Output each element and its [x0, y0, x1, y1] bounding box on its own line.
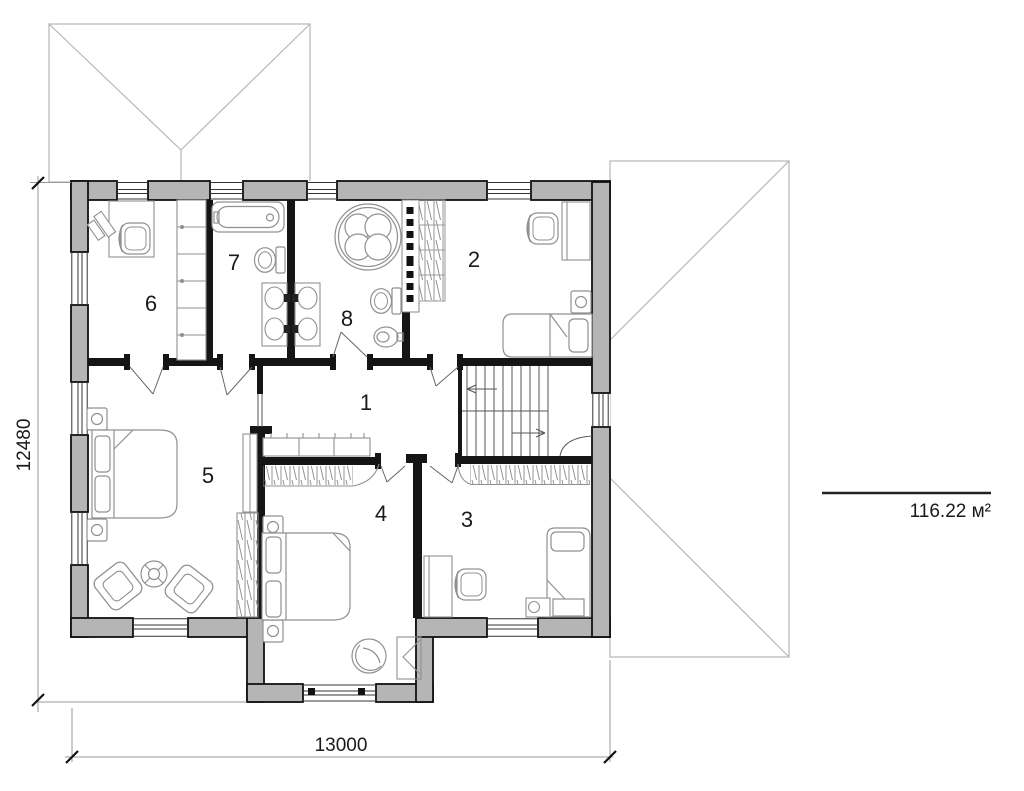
desk-room2: [562, 202, 590, 260]
wall-rooms-4-3: [413, 457, 422, 618]
nightstand-room2: [571, 291, 591, 313]
nightstand-room3: [526, 598, 550, 617]
dimension-height-label: 12480: [14, 419, 35, 472]
room-number-7: 7: [228, 250, 240, 275]
area-annotation: 116.22 м²: [822, 493, 991, 522]
chimney-flue-block: [402, 200, 419, 312]
room-number-3: 3: [461, 507, 473, 532]
wardrobe-room6: [177, 200, 206, 360]
room-number-1: 1: [360, 390, 372, 415]
chair-room6: [120, 223, 151, 254]
floor-plan-page: 1 2 3 4 5 6 7 8 13000 12480 116.22 м²: [0, 0, 1024, 791]
wall-rooms-7-8: [287, 200, 295, 358]
room-number-8: 8: [341, 306, 353, 331]
room-number-2: 2: [468, 247, 480, 272]
desk-room3: [424, 556, 452, 617]
roof-outline-top-left: [49, 24, 310, 182]
roof-outline-right: [610, 161, 789, 657]
nightstand-room5-top: [87, 408, 107, 430]
toilet-room7: [255, 247, 286, 273]
dimension-width-label: 13000: [315, 735, 368, 756]
nightstand-room4-bottom: [263, 620, 283, 642]
bed-room5: [92, 430, 177, 518]
bed-room2: [503, 314, 592, 357]
bed-room3: [547, 528, 590, 617]
closet-room3: [458, 464, 590, 485]
wardrobe-room2: [419, 200, 445, 301]
bathtub: [212, 202, 284, 232]
area-label: 116.22 м²: [910, 501, 991, 522]
armchair-room4: [352, 639, 386, 673]
coffee-table-room5: [141, 561, 167, 587]
chair-room2: [528, 213, 559, 244]
jacuzzi: [335, 204, 401, 270]
wall-stair-bottom: [458, 456, 592, 464]
nightstand-room5-bottom: [87, 519, 107, 541]
wall-stair-left: [458, 366, 462, 456]
room-number-6: 6: [145, 291, 157, 316]
chair-room3: [456, 569, 487, 600]
floor-plan-drawing: 1 2 3 4 5 6 7 8 13000 12480 116.22 м²: [0, 0, 1024, 791]
room-number-4: 4: [375, 501, 387, 526]
wall-stub-hallway: [257, 366, 263, 394]
bed-room4: [262, 533, 350, 620]
wall-room4-closet: [262, 457, 380, 465]
toilet-room8: [371, 288, 402, 314]
room-number-5: 5: [202, 463, 214, 488]
